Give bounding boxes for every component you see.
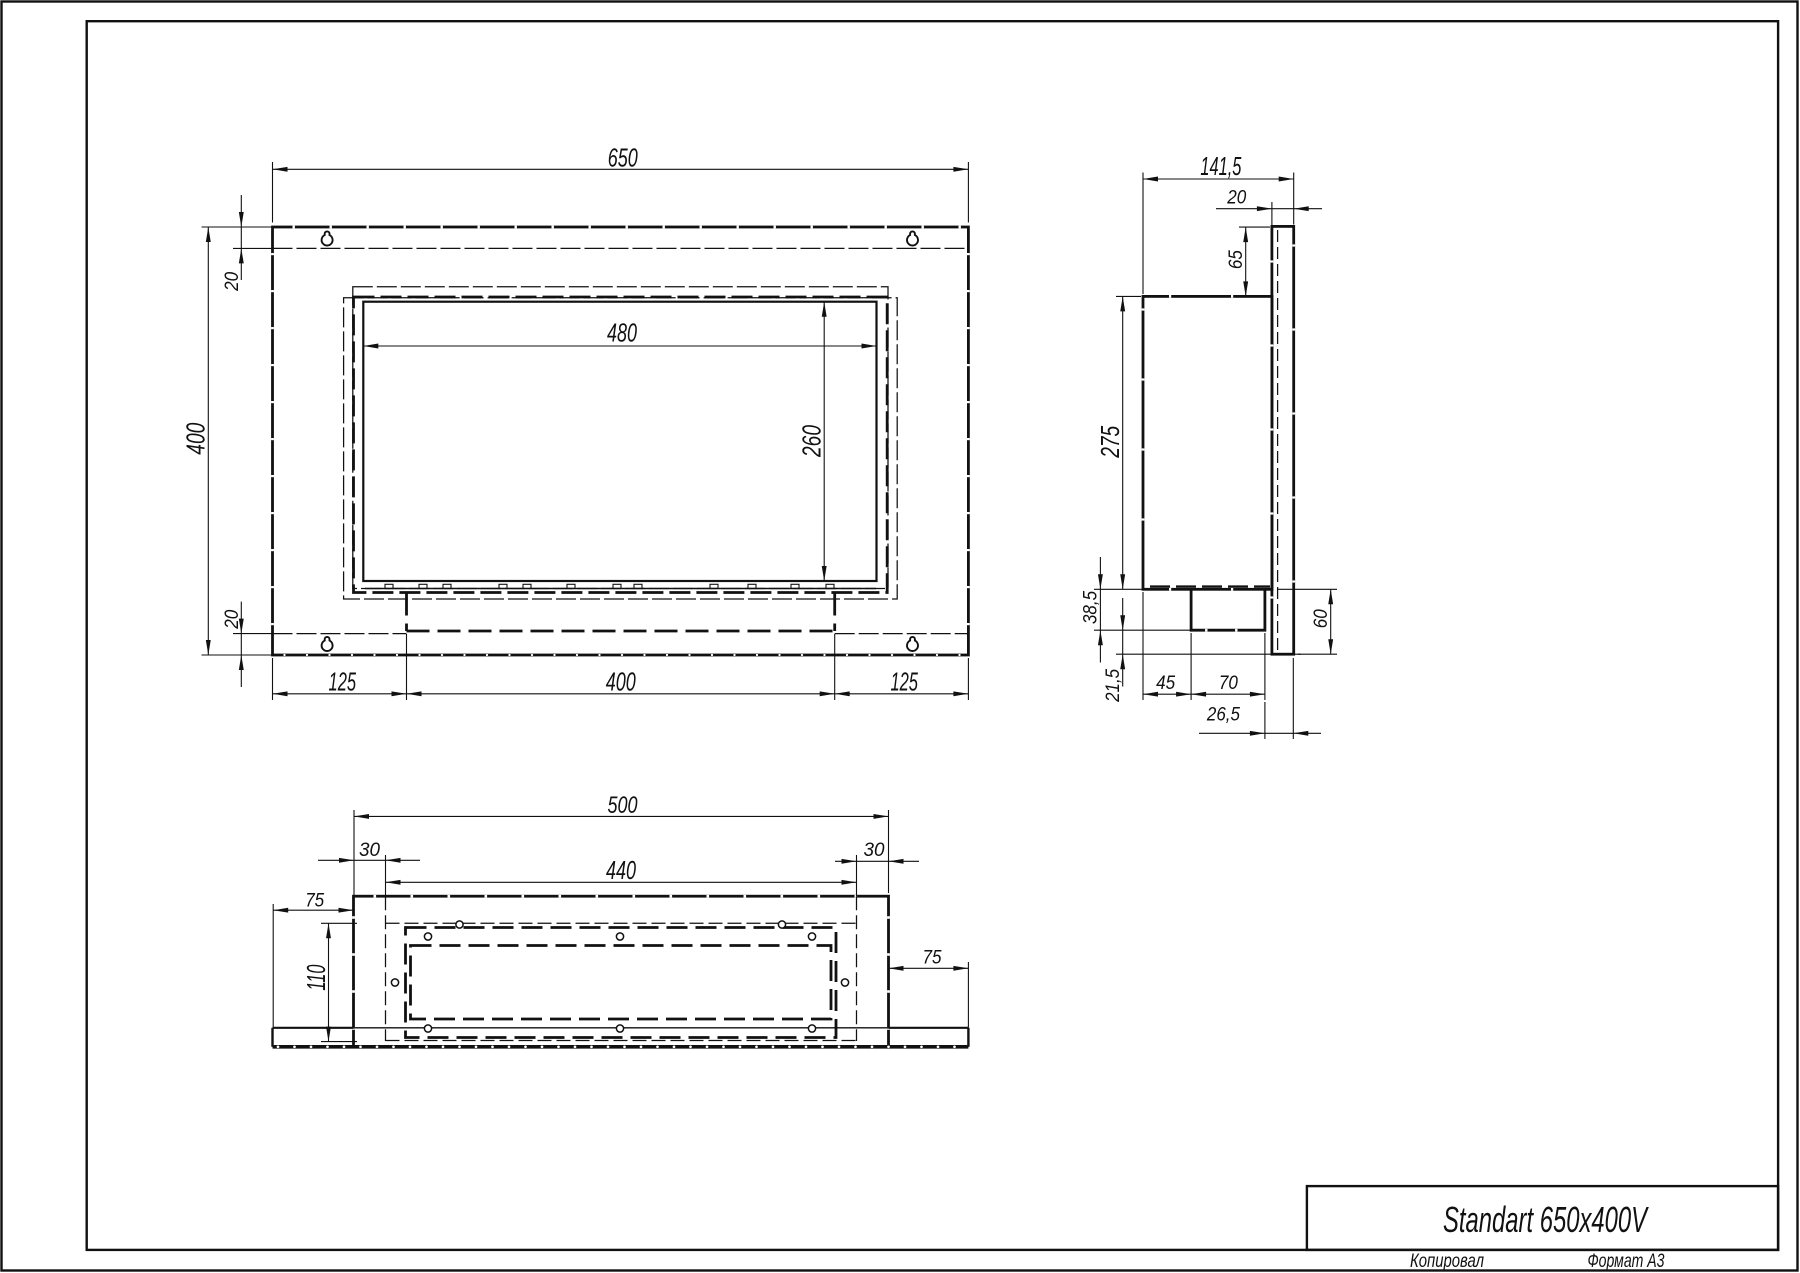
svg-text:65: 65 xyxy=(1226,250,1247,269)
svg-text:110: 110 xyxy=(301,964,331,990)
svg-text:60: 60 xyxy=(1311,609,1332,628)
svg-text:480: 480 xyxy=(607,317,637,347)
svg-text:440: 440 xyxy=(606,855,636,885)
svg-text:400: 400 xyxy=(606,667,636,697)
svg-text:20: 20 xyxy=(222,272,243,292)
svg-text:30: 30 xyxy=(359,840,380,861)
svg-text:260: 260 xyxy=(797,425,827,458)
svg-text:141,5: 141,5 xyxy=(1200,151,1241,181)
svg-text:38,5: 38,5 xyxy=(1081,591,1102,624)
svg-text:650: 650 xyxy=(608,142,638,172)
svg-text:70: 70 xyxy=(1219,673,1238,694)
svg-text:500: 500 xyxy=(608,792,638,819)
svg-text:400: 400 xyxy=(181,422,211,454)
svg-text:20: 20 xyxy=(222,609,243,629)
svg-text:75: 75 xyxy=(305,891,324,912)
svg-text:30: 30 xyxy=(864,840,885,861)
svg-text:21,5: 21,5 xyxy=(1103,669,1124,703)
svg-text:26,5: 26,5 xyxy=(1206,705,1240,726)
svg-text:125: 125 xyxy=(890,667,918,697)
svg-text:275: 275 xyxy=(1095,425,1125,458)
svg-text:45: 45 xyxy=(1156,673,1175,694)
svg-text:20: 20 xyxy=(1226,188,1246,209)
svg-text:75: 75 xyxy=(923,948,942,969)
svg-text:Standart 650x400V: Standart 650x400V xyxy=(1443,1199,1649,1240)
svg-text:Формат А3: Формат А3 xyxy=(1588,1251,1665,1272)
svg-text:Копировал: Копировал xyxy=(1410,1251,1484,1272)
svg-text:125: 125 xyxy=(329,667,357,697)
